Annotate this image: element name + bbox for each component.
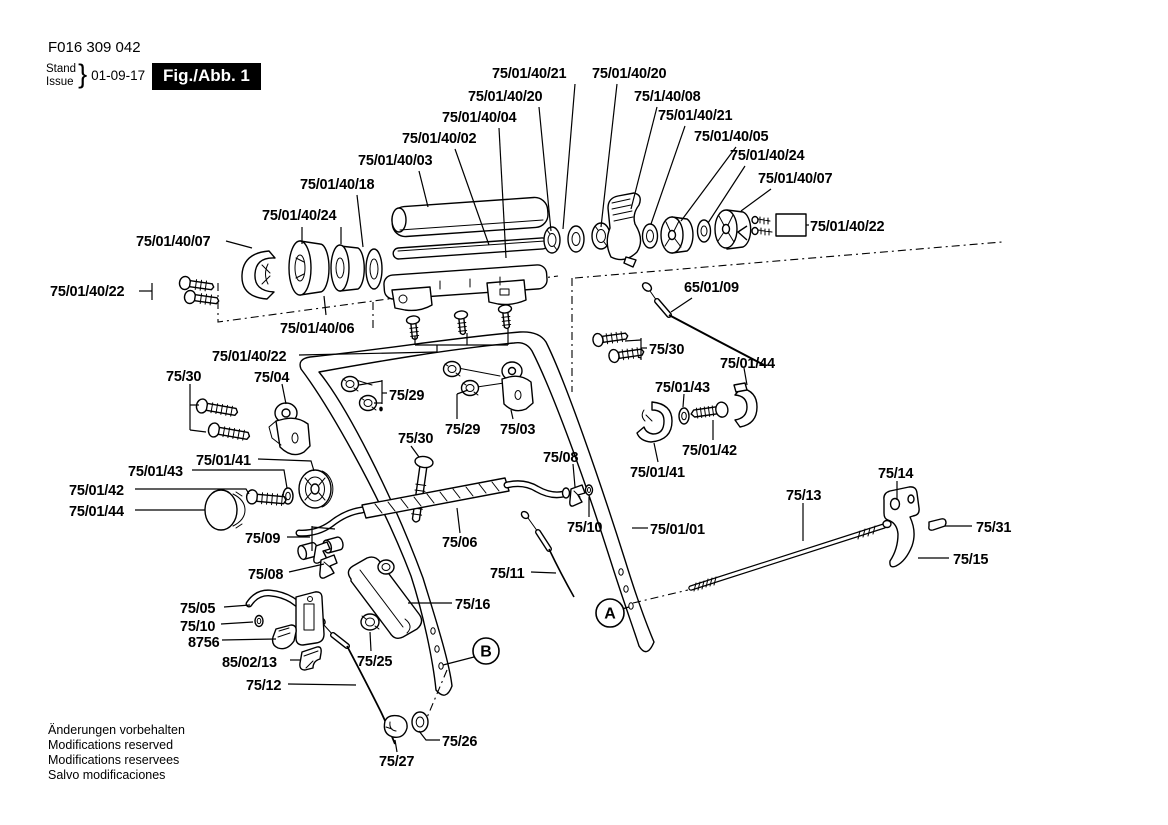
part-label: 75/10 [567,520,602,536]
part-label: 75/01/41 [630,465,685,481]
leader-line [282,384,286,404]
part-label: 75/01/40/21 [492,66,567,82]
leader-line [324,296,326,315]
part-label: 85/02/13 [222,655,277,671]
part-label: 75/01/40/22 [212,349,287,365]
screws-22-right [752,217,772,236]
part-label: 75/01/41 [196,453,251,469]
part-label: 75/15 [953,552,988,568]
leader-line [289,564,324,572]
part-label: 75/11 [490,566,525,582]
roller-bearing-a [289,241,329,295]
ring-75-10-left [255,616,263,627]
roller-lower-housing [383,264,547,310]
part-label: 75/01/40/22 [810,219,885,235]
part-label: 75/27 [379,754,414,770]
flange-nut [462,381,479,396]
part-label: 75/1/40/08 [634,89,701,105]
part-label: 75/26 [442,734,477,750]
cable-75-11 [520,510,574,597]
leader-line [288,684,356,685]
part-label: 75/01/40/02 [402,131,477,147]
leader-line [625,340,641,341]
nut-75-25 [361,614,379,630]
leader-line [221,622,253,624]
part-label: 75/01/40/21 [658,108,733,124]
view-marker-letter: A [604,606,616,623]
part-label: 75/01/40/20 [592,66,667,82]
end-cap-07-right [715,210,751,249]
leader-line [419,171,428,207]
part-label: 75/01/44 [69,504,124,520]
part-label: 75/01/42 [682,443,737,459]
clip-75-01-44-right [734,383,757,427]
legal-line: Modifications reservees [48,753,185,768]
wheel-05 [661,217,693,253]
part-label: 75/05 [180,601,215,617]
cup-75-01-41-right [637,402,672,442]
leader-line [651,126,685,224]
leader-line [654,443,658,462]
parts-diagram-page: F016 309 042 Stand Issue } 01-09-17 Fig.… [0,0,1168,825]
clip-85-02-13 [300,647,321,670]
roller-bearing-b [331,245,364,291]
part-label: 75/30 [398,431,433,447]
part-label: 75/08 [248,567,283,583]
part-label: 75/06 [442,535,477,551]
part-label: 75/01/40/07 [758,171,833,187]
leader-line [531,572,556,573]
rod-75-13 [691,521,891,592]
part-label: 75/01/43 [128,464,183,480]
part-label: 75/01/40/05 [694,129,769,145]
part-label: 75/03 [500,422,535,438]
leader-line [741,189,771,211]
nut-75-27 [384,716,407,738]
flange-nut [360,396,377,411]
cap-75-01-44-left [205,490,245,530]
legal-line: Änderungen vorbehalten [48,723,185,738]
roller-top-half [391,197,549,238]
bushings-75-09 [297,536,345,563]
part-label: 75/01/01 [650,522,705,538]
flange-nut [444,362,461,377]
part-label: 75/01/40/07 [136,234,211,250]
pin-75-31 [929,519,946,530]
part-label: 75/01/40/22 [50,284,125,300]
leader-line [190,430,206,432]
pawl-8756 [273,625,297,649]
screw-callout-box [776,214,806,236]
washer-75-26 [412,712,428,732]
part-label: 75/29 [445,422,480,438]
clamp-75-04 [269,403,310,455]
part-label: 8756 [188,635,220,651]
ring-18 [366,249,382,289]
part-label: 75/10 [180,619,215,635]
leader-line [511,410,513,419]
legal-notice: Änderungen vorbehalten Modifications res… [48,723,185,783]
screws-22-left [179,276,220,308]
part-label: 75/01/40/04 [442,110,517,126]
part-label: 75/01/40/03 [358,153,433,169]
part-label: 75/08 [543,450,578,466]
leader-line [499,128,506,258]
part-label: 75/01/40/06 [280,321,355,337]
part-label: 75/01/42 [69,483,124,499]
leader-line [563,84,575,229]
part-label: 75/13 [786,488,821,504]
leader-line [222,639,276,640]
leader-line [573,464,575,487]
part-label: 75/01/40/18 [300,177,375,193]
part-label: 75/01/43 [655,380,710,396]
pulley-75-01-41-left [299,470,333,508]
roller-axle-tube [393,238,548,260]
leader-line [258,459,314,471]
part-label: 75/14 [878,466,913,482]
part-label: 75/04 [254,370,289,386]
lock-lever-08 [607,193,640,267]
leader-line [192,470,287,488]
leader-line [224,605,250,607]
leader-line [411,446,419,457]
leader-line [395,740,397,752]
labels-layer: 75/01/40/2175/01/40/2075/01/40/2075/1/40… [50,66,1011,770]
part-label: 65/01/09 [684,280,739,296]
part-label: 75/01/40/24 [730,148,805,164]
washer-nut-row [544,223,610,253]
leader-line [631,107,657,209]
end-cup-left [242,251,275,299]
part-label: 75/12 [246,678,281,694]
part-label: 75/30 [649,342,684,358]
leader-line [671,298,692,312]
clamp-75-03 [502,362,533,411]
part-label: 75/01/40/20 [468,89,543,105]
leader-line [226,241,252,248]
legal-line: Modifications reserved [48,738,185,753]
bolts-75-30-right [592,329,644,363]
cable-75-12 [315,616,395,744]
bolt-75-01-42-right [690,401,729,421]
bolt-75-30-vertical [407,455,434,523]
bolt-75-01-42-left [246,489,287,506]
leader-line [457,508,460,533]
part-label: 75/29 [389,388,424,404]
part-label: 75/01/40/24 [262,208,337,224]
part-label: 75/01/44 [720,356,775,372]
bolts-75-30-left [195,398,250,443]
view-marker-letter: B [480,644,492,661]
leader-line [357,195,363,247]
ring-75-10-right [586,485,593,495]
exploded-view-drawing: 75/01/40/2175/01/40/2075/01/40/2075/1/40… [0,0,1168,825]
part-label: 75/30 [166,369,201,385]
washer-75-01-43-right [679,408,689,424]
leader-line [135,489,249,494]
flange-nut [342,377,359,392]
washer-24-right [698,220,711,242]
part-label: 75/09 [245,531,280,547]
clip-75-08-right [570,485,585,506]
washer-21-right [643,224,658,248]
legal-line: Salvo modificaciones [48,768,185,783]
grip-bar-75-06 [299,478,570,533]
part-label: 75/31 [976,520,1011,536]
part-label: 75/16 [455,597,490,613]
leader-line [370,632,371,651]
part-label: 75/25 [357,654,392,670]
